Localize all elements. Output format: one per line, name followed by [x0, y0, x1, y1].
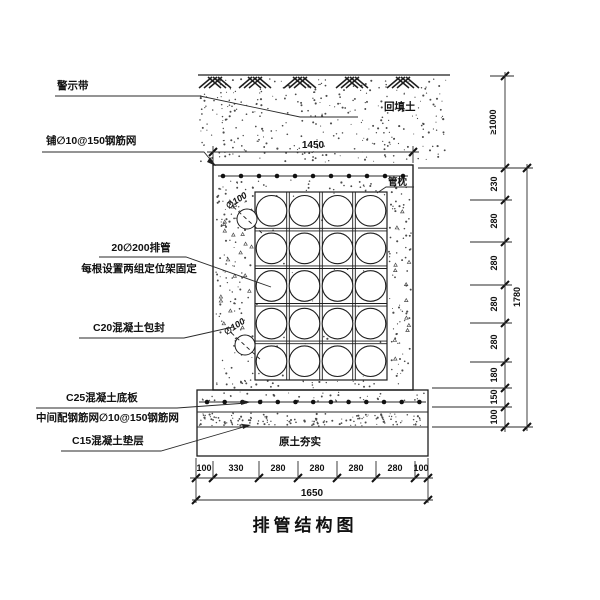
stipple-dot: [439, 93, 440, 94]
stipple-dot: [413, 419, 415, 421]
stipple-dot: [217, 280, 219, 282]
stipple-dot: [422, 95, 424, 97]
stipple-dot: [396, 252, 398, 254]
stipple-dot: [318, 381, 320, 383]
stipple-dot: [391, 369, 393, 371]
stipple-dot: [225, 193, 227, 195]
stipple-dot: [319, 84, 320, 85]
stipple-dot: [312, 159, 314, 161]
stipple-dot: [341, 419, 342, 420]
stipple-dot: [358, 157, 359, 158]
stipple-dot: [337, 119, 338, 120]
stipple-dot: [260, 104, 262, 106]
stipple-dot: [440, 109, 442, 111]
dim-right-4: 280: [489, 334, 499, 349]
stipple-dot: [403, 128, 405, 130]
stipple-dot: [200, 130, 201, 131]
stipple-dot: [219, 285, 221, 287]
stipple-dot: [418, 107, 419, 108]
stipple-dot: [217, 195, 219, 197]
stipple-dot: [325, 85, 327, 87]
stipple-dot: [231, 367, 233, 369]
stipple-dot: [233, 218, 235, 220]
stipple-dot: [363, 138, 364, 139]
stipple-dot: [414, 97, 415, 98]
stipple-dot: [333, 193, 334, 194]
stipple-dot: [362, 120, 363, 121]
stipple-dot: [395, 200, 397, 202]
stipple-dot: [342, 132, 344, 134]
stipple-dot: [220, 276, 221, 277]
stipple-dot: [407, 146, 409, 148]
dim-bottom-1: 330: [228, 463, 243, 473]
stipple-dot: [221, 320, 222, 321]
stipple-dot: [355, 424, 356, 425]
stipple-dot: [436, 98, 438, 100]
ground-hatch-icon: [336, 77, 368, 88]
pipe-circle: [289, 233, 320, 264]
stipple-dot: [270, 386, 272, 388]
stipple-dot: [224, 423, 226, 425]
stipple-dot: [235, 127, 237, 129]
stipple-dot: [223, 140, 224, 141]
stipple-dot: [310, 115, 311, 116]
concrete-triangle: [395, 226, 398, 229]
stipple-dot: [401, 369, 403, 371]
stipple-dot: [284, 98, 286, 100]
stipple-dot: [322, 154, 324, 156]
stipple-dot: [360, 422, 361, 423]
stipple-dot: [373, 143, 375, 145]
stipple-dot: [370, 80, 372, 82]
stipple-dot: [204, 94, 205, 95]
stipple-dot: [419, 420, 420, 421]
stipple-dot: [316, 418, 317, 419]
stipple-dot: [218, 417, 220, 419]
dim-bottom-total: 1650: [301, 488, 324, 499]
stipple-dot: [312, 384, 314, 386]
label-compacted-soil: 原土夯实: [279, 435, 321, 448]
stipple-dot: [397, 343, 398, 344]
top-mesh-leader: [42, 152, 214, 164]
stipple-dot: [304, 420, 306, 422]
stipple-dot: [319, 102, 320, 103]
stipple-dot: [230, 420, 231, 421]
stipple-dot: [426, 159, 427, 160]
stipple-dot: [392, 308, 393, 309]
stipple-dot: [423, 129, 424, 130]
stipple-dot: [380, 393, 382, 395]
stipple-dot: [312, 98, 313, 99]
stipple-dot: [245, 189, 247, 191]
stipple-dot: [359, 417, 361, 419]
rebar-dot: [239, 174, 244, 179]
rebar-dot: [205, 400, 210, 405]
stipple-dot: [422, 146, 423, 147]
stipple-dot: [399, 342, 400, 343]
concrete-triangle: [223, 229, 226, 232]
stipple-dot: [254, 111, 255, 112]
stipple-dot: [366, 156, 367, 157]
stipple-dot: [235, 241, 237, 243]
stipple-dot: [324, 420, 325, 421]
stipple-dot: [398, 383, 399, 384]
stipple-dot: [233, 345, 234, 346]
stipple-dot: [275, 99, 277, 101]
stipple-dot: [232, 418, 233, 419]
stipple-dot: [380, 100, 382, 102]
stipple-dot: [377, 398, 379, 400]
stipple-dot: [367, 396, 368, 397]
stipple-dot: [391, 341, 393, 343]
pipe-circle: [256, 196, 287, 227]
stipple-dot: [263, 414, 265, 416]
stipple-dot: [417, 415, 419, 417]
stipple-dot: [354, 109, 355, 110]
stipple-dot: [315, 115, 316, 116]
stipple-dot: [229, 240, 230, 241]
stipple-dot: [312, 423, 314, 425]
stipple-dot: [302, 153, 304, 155]
stipple-dot: [229, 377, 230, 378]
stipple-dot: [410, 289, 412, 291]
stipple-dot: [392, 206, 393, 207]
stipple-dot: [214, 399, 216, 401]
stipple-dot: [356, 133, 357, 134]
stipple-dot: [364, 186, 365, 187]
stipple-dot: [383, 419, 385, 421]
stipple-dot: [250, 412, 252, 414]
stipple-dot: [384, 422, 385, 423]
stipple-dot: [413, 424, 414, 425]
stipple-dot: [417, 158, 418, 159]
rebar-dot: [417, 400, 422, 405]
stipple-dot: [205, 105, 206, 106]
stipple-dot: [222, 186, 223, 187]
stipple-dot: [404, 228, 406, 230]
stipple-dot: [226, 383, 228, 385]
stipple-dot: [227, 282, 228, 283]
stipple-dot: [307, 110, 309, 112]
stipple-dot: [396, 424, 398, 426]
stipple-dot: [361, 122, 362, 123]
stipple-dot: [233, 413, 234, 414]
stipple-dot: [250, 386, 252, 388]
stipple-dot: [300, 102, 302, 104]
ground-hatch-icon: [239, 77, 271, 88]
stipple-dot: [363, 270, 364, 271]
label-base-slab: C25混凝土底板: [66, 391, 138, 404]
stipple-dot: [338, 392, 339, 393]
dim-right-3: 280: [489, 296, 499, 311]
stipple-dot: [404, 360, 406, 362]
stipple-dot: [246, 113, 248, 115]
stipple-dot: [382, 141, 383, 142]
stipple-dot: [218, 188, 220, 190]
stipple-dot: [360, 90, 361, 91]
stipple-dot: [271, 137, 273, 139]
stipple-dot: [324, 113, 326, 115]
dim-bottom-6: 100: [413, 463, 428, 473]
stipple-dot: [239, 418, 241, 420]
stipple-dot: [224, 271, 225, 272]
label-pipe-dia-upper: ∅100: [224, 190, 249, 211]
stipple-dot: [258, 139, 260, 141]
stipple-dot: [345, 420, 347, 422]
stipple-dot: [413, 415, 414, 416]
stipple-dot: [213, 416, 215, 418]
rebar-dot: [365, 174, 370, 179]
stipple-dot: [259, 158, 260, 159]
stipple-dot: [445, 80, 446, 81]
stipple-dot: [408, 81, 409, 82]
concrete-triangle: [250, 245, 253, 248]
stipple-dot: [216, 114, 217, 115]
stipple-dot: [389, 227, 391, 229]
stipple-dot: [395, 416, 396, 417]
dim-cover-depth: ≥1000: [488, 110, 498, 135]
stipple-dot: [405, 235, 407, 237]
stipple-dot: [268, 424, 269, 425]
stipple-dot: [273, 394, 275, 396]
stipple-dot: [216, 422, 217, 423]
stipple-dot: [203, 100, 205, 102]
stipple-dot: [394, 276, 396, 278]
stipple-dot: [269, 78, 271, 80]
stipple-dot: [220, 313, 222, 315]
stipple-dot: [230, 139, 232, 141]
stipple-dot: [396, 333, 398, 335]
stipple-dot: [201, 108, 203, 110]
stipple-dot: [381, 106, 383, 108]
stipple-dot: [365, 190, 366, 191]
stipple-dot: [228, 221, 230, 223]
stipple-dot: [216, 274, 218, 276]
stipple-dot: [318, 84, 319, 85]
stipple-dot: [365, 421, 367, 423]
stipple-dot: [232, 424, 233, 425]
stipple-dot: [410, 232, 411, 233]
stipple-dot: [230, 181, 231, 182]
stipple-dot: [230, 111, 232, 113]
stipple-dot: [390, 413, 391, 414]
stipple-dot: [288, 392, 289, 393]
stipple-dot: [219, 316, 220, 317]
stipple-dot: [380, 341, 382, 343]
stipple-dot: [242, 419, 244, 421]
stipple-dot: [383, 132, 385, 134]
stipple-dot: [438, 85, 440, 87]
stipple-dot: [267, 420, 268, 421]
stipple-dot: [241, 272, 242, 273]
stipple-dot: [206, 130, 207, 131]
dim-right-total: 1780: [512, 287, 522, 307]
stipple-dot: [312, 421, 313, 422]
stipple-dot: [384, 144, 386, 146]
stipple-dot: [389, 298, 390, 299]
rebar-dot: [383, 174, 388, 179]
stipple-dot: [285, 122, 286, 123]
stipple-dot: [257, 99, 258, 100]
stipple-dot: [397, 323, 398, 324]
concrete-triangle: [239, 251, 242, 254]
stipple-dot: [390, 144, 391, 145]
stipple-dot: [406, 158, 407, 159]
concrete-triangle: [219, 299, 222, 302]
stipple-dot: [256, 104, 257, 105]
stipple-dot: [433, 128, 434, 129]
stipple-dot: [334, 153, 336, 155]
stipple-dot: [301, 120, 303, 122]
stipple-dot: [221, 108, 222, 109]
stipple-dot: [398, 306, 400, 308]
stipple-dot: [325, 95, 327, 97]
stipple-dot: [290, 419, 292, 421]
stipple-dot: [333, 135, 335, 137]
stipple-dot: [396, 240, 398, 242]
stipple-dot: [335, 399, 336, 400]
stipple-dot: [274, 81, 276, 83]
stipple-dot: [277, 413, 279, 415]
stipple-dot: [211, 396, 212, 397]
label-pipe-pillow: 管枕: [388, 176, 408, 188]
stipple-dot: [261, 112, 263, 114]
stipple-dot: [326, 382, 327, 383]
stipple-dot: [231, 415, 232, 416]
stipple-dot: [441, 101, 442, 102]
stipple-dot: [297, 101, 299, 103]
rebar-dot: [346, 400, 351, 405]
stipple-dot: [255, 383, 257, 385]
stipple-dot: [368, 128, 369, 129]
stipple-dot: [394, 210, 396, 212]
stipple-dot: [366, 101, 368, 103]
stipple-dot: [416, 394, 417, 395]
concrete-triangle: [394, 263, 397, 266]
stipple-dot: [224, 155, 226, 157]
stipple-dot: [220, 92, 222, 94]
stipple-dot: [363, 380, 364, 381]
stipple-dot: [222, 122, 223, 123]
stipple-dot: [410, 248, 412, 250]
stipple-dot: [372, 125, 374, 127]
rebar-dot: [275, 174, 280, 179]
stipple-dot: [404, 320, 405, 321]
stipple-dot: [235, 218, 236, 219]
stipple-dot: [209, 414, 211, 416]
stipple-dot: [223, 424, 225, 426]
stipple-dot: [221, 221, 222, 222]
stipple-dot: [267, 422, 268, 423]
stipple-dot: [357, 415, 359, 417]
stipple-dot: [240, 416, 242, 418]
stipple-dot: [276, 130, 277, 131]
stipple-dot: [408, 218, 410, 220]
stipple-dot: [365, 102, 366, 103]
stipple-dot: [200, 97, 202, 99]
stipple-dot: [376, 132, 377, 133]
stipple-dot: [354, 148, 356, 150]
stipple-dot: [391, 191, 393, 193]
stipple-dot: [409, 199, 411, 201]
stipple-dot: [225, 209, 226, 210]
stipple-dot: [250, 417, 252, 419]
stipple-dot: [317, 400, 319, 402]
stipple-dot: [352, 417, 353, 418]
stipple-dot: [221, 104, 223, 106]
stipple-dot: [257, 135, 258, 136]
stipple-dot: [263, 136, 264, 137]
stipple-dot: [352, 100, 354, 102]
ground-hatch-icon: [199, 77, 231, 88]
stipple-dot: [347, 112, 349, 114]
stipple-dot: [417, 118, 418, 119]
stipple-dot: [407, 414, 409, 416]
stipple-dot: [351, 124, 352, 125]
stipple-dot: [414, 399, 416, 401]
stipple-dot: [252, 186, 253, 187]
stipple-dot: [436, 115, 437, 116]
stipple-dot: [234, 310, 235, 311]
stipple-dot: [237, 424, 238, 425]
pipe-circle: [289, 196, 320, 227]
stipple-dot: [398, 364, 399, 365]
stipple-dot: [293, 196, 294, 197]
stipple-dot: [399, 305, 400, 306]
stipple-dot: [211, 425, 212, 426]
stipple-dot: [385, 84, 386, 85]
concrete-triangle: [229, 309, 232, 312]
stipple-dot: [223, 128, 224, 129]
pipe-circle: [355, 233, 386, 264]
stipple-dot: [232, 383, 233, 384]
stipple-dot: [424, 88, 426, 90]
stipple-dot: [284, 160, 286, 162]
stipple-dot: [282, 374, 284, 376]
stipple-dot: [409, 348, 411, 350]
structure-layer: [192, 72, 531, 504]
stipple-dot: [234, 247, 235, 248]
stipple-dot: [217, 202, 219, 204]
stipple-dot: [392, 274, 393, 275]
stipple-dot: [212, 109, 214, 111]
stipple-dot: [349, 419, 351, 421]
concrete-triangle: [405, 299, 408, 302]
rebar-dot: [293, 174, 298, 179]
stipple-dot: [222, 120, 223, 121]
stipple-dot: [388, 251, 390, 253]
stipple-dot: [329, 105, 330, 106]
stipple-dot: [369, 185, 371, 187]
stipple-dot: [216, 313, 217, 314]
stipple-dot: [204, 415, 205, 416]
stipple-dot: [225, 80, 226, 81]
rebar-dot: [364, 400, 369, 405]
dim-right-5: 180: [489, 367, 499, 382]
stipple-dot: [363, 376, 364, 377]
rebar-dot: [276, 400, 281, 405]
stipple-dot: [353, 421, 355, 423]
stipple-dot: [312, 156, 314, 158]
stipple-dot: [433, 79, 434, 80]
stipple-dot: [387, 145, 389, 147]
stipple-dot: [391, 416, 392, 417]
stipple-dot: [312, 121, 314, 123]
stipple-dot: [247, 297, 249, 299]
stipple-dot: [287, 112, 289, 114]
stipple-dot: [385, 156, 387, 158]
concrete-triangle: [243, 274, 246, 277]
